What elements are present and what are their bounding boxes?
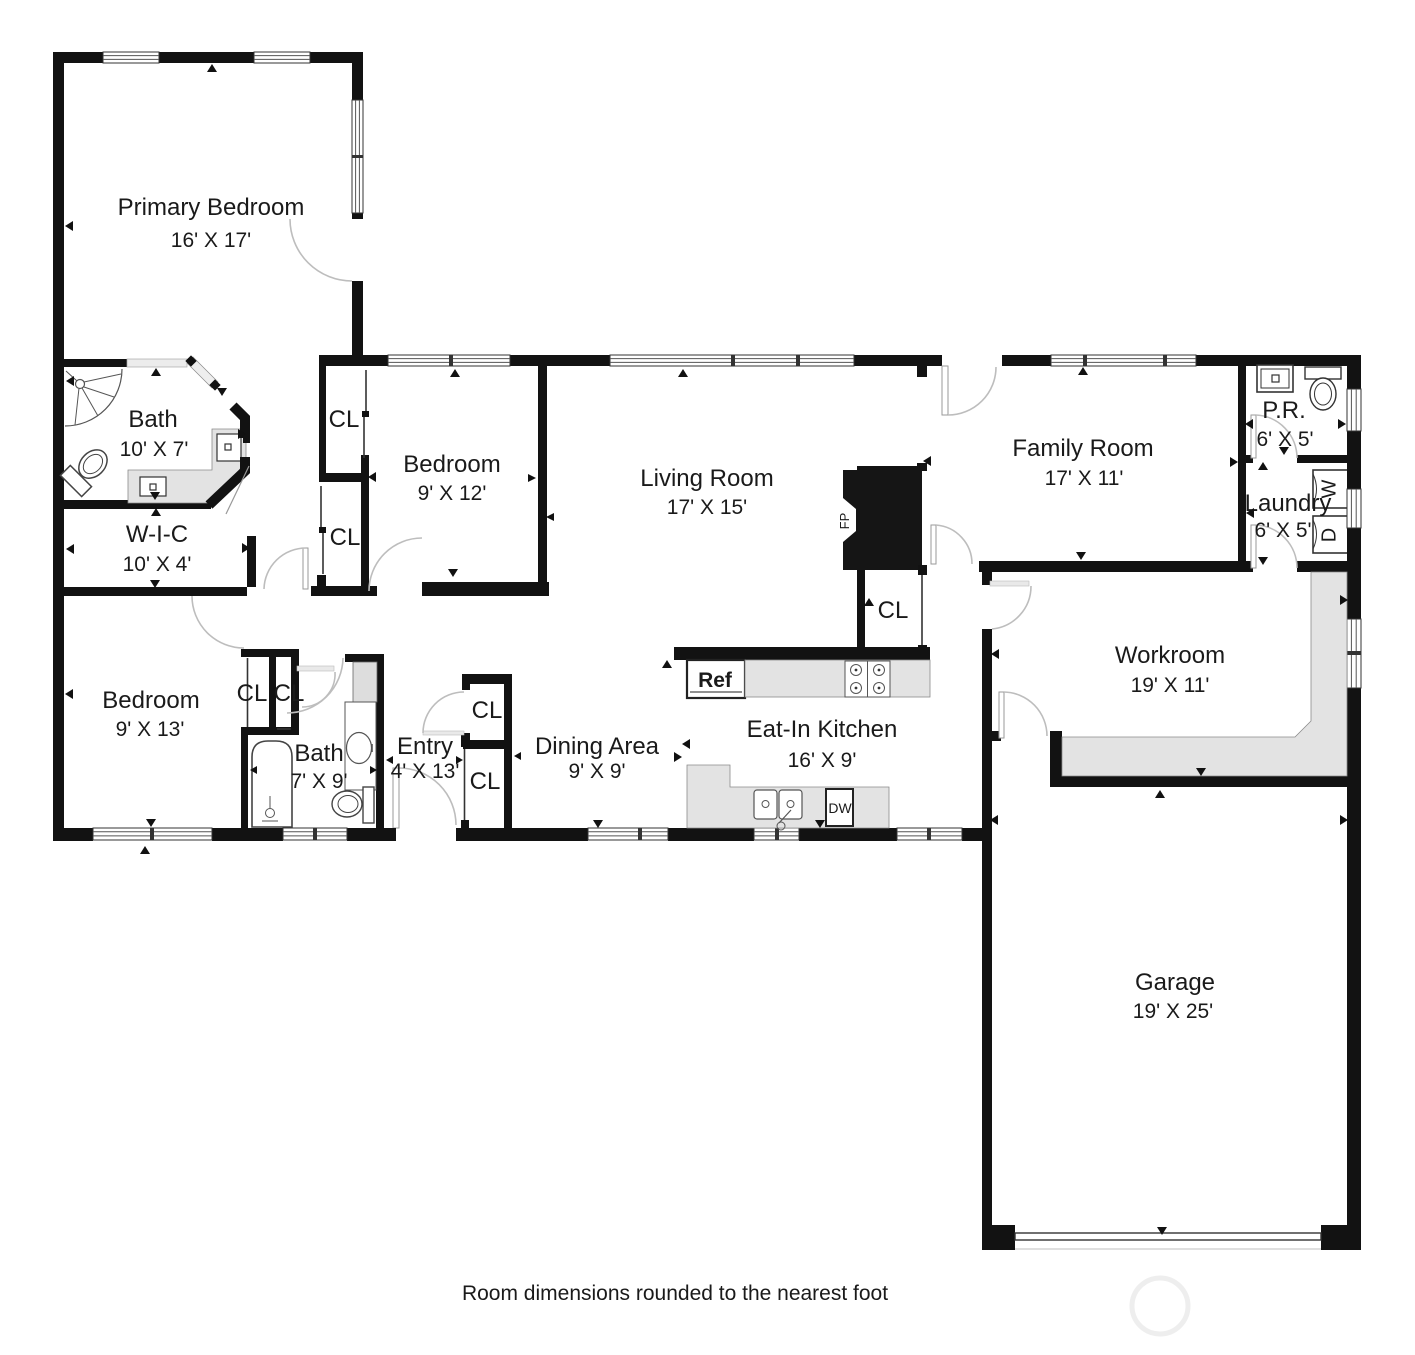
svg-text:CL: CL <box>470 768 501 795</box>
svg-text:Family Room: Family Room <box>1012 435 1153 462</box>
svg-text:19' X 11': 19' X 11' <box>1131 674 1210 697</box>
svg-text:Workroom: Workroom <box>1115 642 1225 669</box>
svg-text:Bath: Bath <box>128 406 177 433</box>
svg-text:19' X 25': 19' X 25' <box>1133 1000 1213 1023</box>
svg-text:P.R.: P.R. <box>1262 397 1306 424</box>
svg-text:Living Room: Living Room <box>640 465 773 492</box>
svg-text:Garage: Garage <box>1135 969 1215 996</box>
svg-text:CL: CL <box>329 406 360 433</box>
svg-text:10' X 4': 10' X 4' <box>123 553 192 576</box>
svg-text:4' X 13': 4' X 13' <box>391 760 460 783</box>
svg-text:Entry: Entry <box>397 733 453 760</box>
svg-text:DW: DW <box>828 800 852 816</box>
svg-text:W-I-C: W-I-C <box>126 521 188 548</box>
svg-text:17' X 11': 17' X 11' <box>1045 467 1124 490</box>
svg-text:16' X 9': 16' X 9' <box>788 749 857 772</box>
svg-text:Bath: Bath <box>294 740 343 767</box>
svg-text:CL: CL <box>237 680 268 707</box>
svg-text:Dining Area: Dining Area <box>535 733 660 760</box>
svg-text:9' X 13': 9' X 13' <box>116 718 185 741</box>
svg-text:17' X 15': 17' X 15' <box>667 496 747 519</box>
svg-text:CL: CL <box>274 680 305 707</box>
svg-text:CL: CL <box>472 697 503 724</box>
svg-text:Bedroom: Bedroom <box>102 687 199 714</box>
svg-text:Eat-In Kitchen: Eat-In Kitchen <box>747 716 898 743</box>
svg-text:16' X 17': 16' X 17' <box>171 229 251 252</box>
svg-text:Laundry: Laundry <box>1245 490 1332 517</box>
svg-text:10' X 7': 10' X 7' <box>120 438 189 461</box>
svg-text:Room dimensions rounded to the: Room dimensions rounded to the nearest f… <box>462 1282 888 1305</box>
svg-text:CL: CL <box>878 597 909 624</box>
svg-text:D: D <box>1318 528 1340 542</box>
svg-text:9' X 9': 9' X 9' <box>568 760 625 783</box>
svg-text:Ref: Ref <box>698 669 733 692</box>
svg-text:CL: CL <box>330 524 361 551</box>
svg-text:6' X 5': 6' X 5' <box>1254 519 1311 542</box>
svg-text:Bedroom: Bedroom <box>403 451 500 478</box>
svg-text:Primary Bedroom: Primary Bedroom <box>118 194 305 221</box>
svg-text:7' X 9': 7' X 9' <box>290 770 347 793</box>
svg-text:9' X 12': 9' X 12' <box>418 482 487 505</box>
svg-text:FP: FP <box>837 513 852 530</box>
